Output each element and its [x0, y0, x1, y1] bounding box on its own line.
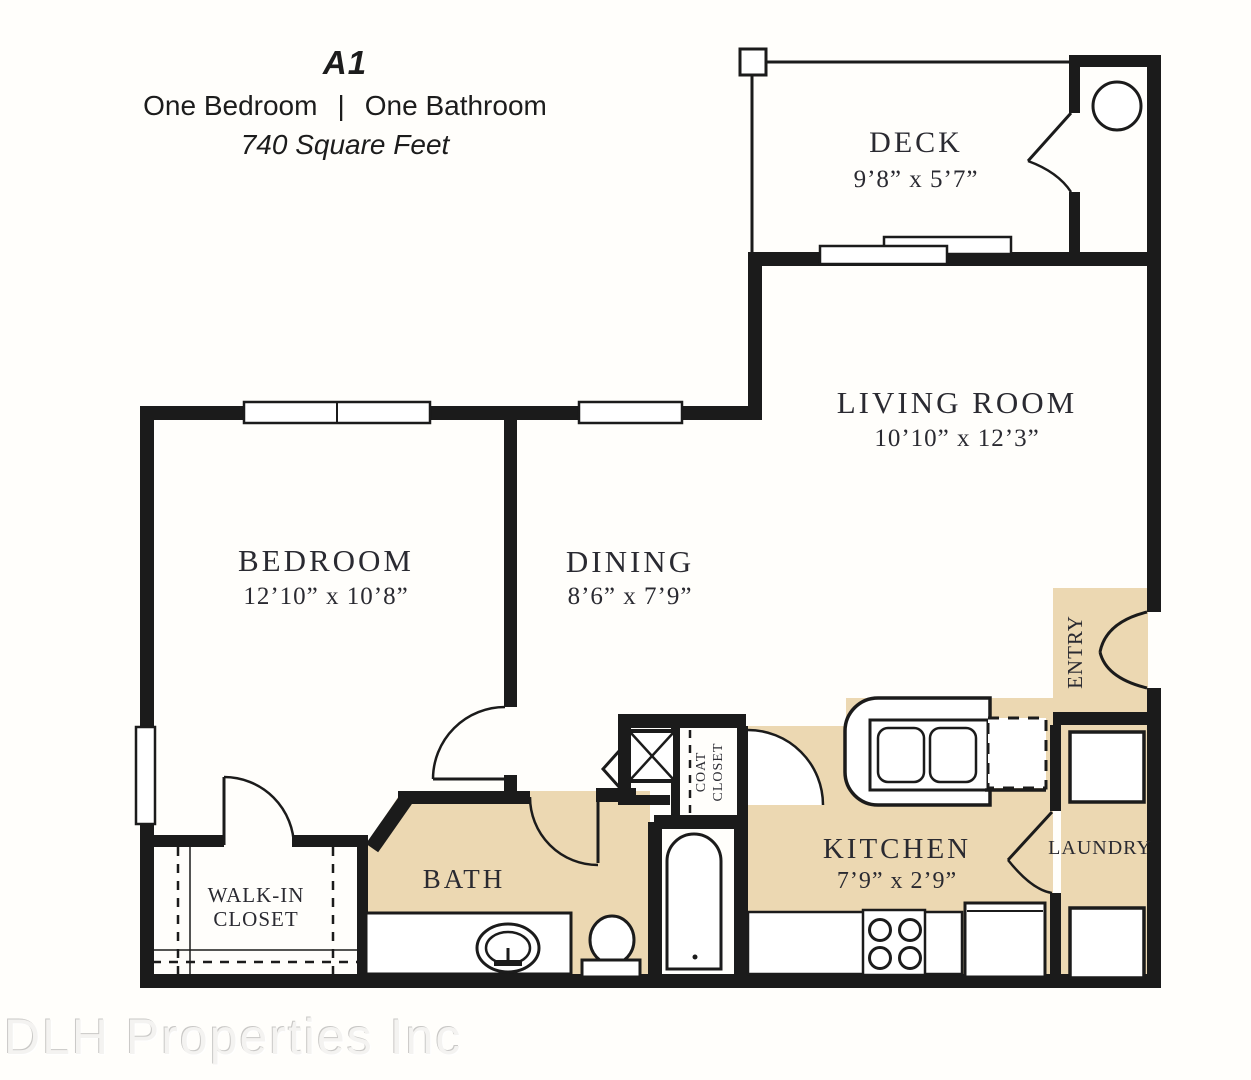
floor-plan-page: A1 One Bedroom|One Bathroom 740 Square F… — [0, 0, 1251, 1080]
walkin-closet-label-line1: WALK-IN — [208, 883, 305, 907]
laundry-label: LAUNDRY — [1048, 837, 1152, 859]
living-room-label: LIVING ROOM — [837, 385, 1078, 420]
kitchen-base-counter — [748, 912, 962, 974]
mechanical-chase — [629, 731, 675, 781]
bathtub — [667, 834, 721, 969]
kitchen-sink-counter — [845, 698, 990, 805]
washer — [1070, 732, 1144, 802]
kitchen-dims: 7’9” x 2’9” — [837, 868, 957, 894]
deck-dims: 9’8” x 5’7” — [854, 166, 979, 193]
watermark: DLH Properties Inc — [4, 1008, 462, 1066]
vanity-sink — [366, 913, 571, 974]
dining-dims: 8’6” x 7’9” — [568, 583, 693, 610]
dining-window — [579, 402, 682, 423]
dishwasher — [985, 718, 1046, 790]
chase-door — [603, 750, 620, 788]
bedroom-dims: 12’10” x 10’8” — [243, 583, 408, 610]
refrigerator — [965, 903, 1045, 977]
bedroom-label: BEDROOM — [238, 543, 414, 578]
sliding-door-panel-front — [820, 246, 947, 264]
stove — [863, 910, 925, 975]
living-room-dims: 10’10” x 12’3” — [874, 425, 1039, 452]
entry-label: ENTRY — [1063, 615, 1087, 689]
dryer — [1070, 908, 1144, 978]
bedroom-side-window — [136, 727, 155, 824]
storage-door-arc — [1028, 161, 1071, 192]
coat-closet-label-line1: COAT — [694, 752, 709, 793]
deck-label: DECK — [869, 126, 963, 159]
dining-label: DINING — [566, 544, 694, 579]
bath-label: BATH — [423, 864, 506, 894]
floor-plan: DECK 9’8” x 5’7” LIVING ROOM 10’10” x 12… — [0, 0, 1251, 1080]
walkin-closet-label-line2: CLOSET — [213, 907, 298, 931]
kitchen-label: KITCHEN — [823, 833, 971, 865]
water-heater — [1093, 82, 1141, 130]
walkin-door-arc — [224, 777, 294, 847]
deck-corner-post — [740, 49, 766, 75]
coat-closet-label-line2: CLOSET — [711, 743, 726, 802]
storage-door-leaf — [1028, 113, 1071, 161]
bedroom-door-arc — [433, 707, 505, 779]
